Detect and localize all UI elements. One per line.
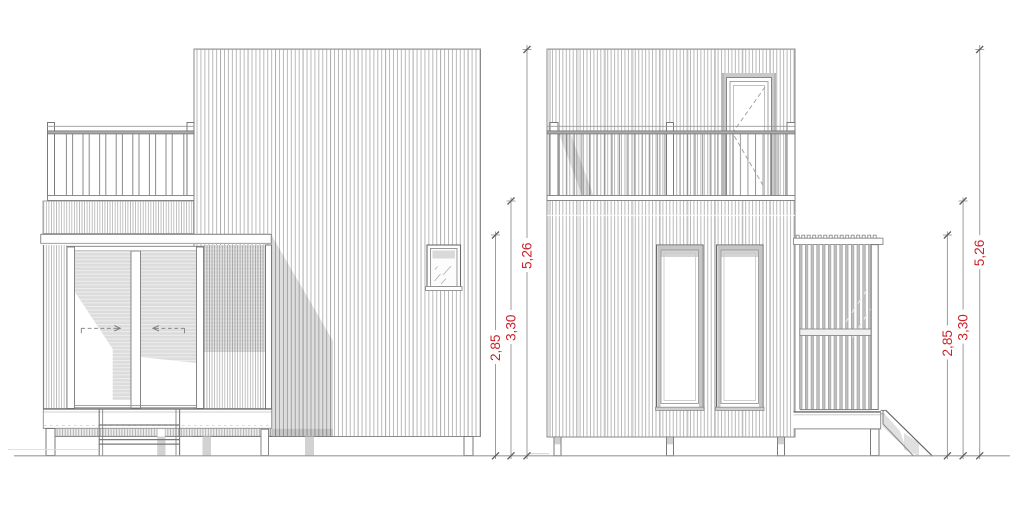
svg-text:5,26: 5,26 bbox=[972, 240, 987, 266]
svg-text:3,30: 3,30 bbox=[504, 314, 519, 341]
svg-text:5,26: 5,26 bbox=[520, 243, 535, 269]
svg-text:2,85: 2,85 bbox=[488, 335, 503, 361]
svg-text:2,85: 2,85 bbox=[940, 330, 955, 356]
svg-text:3,30: 3,30 bbox=[956, 314, 971, 341]
